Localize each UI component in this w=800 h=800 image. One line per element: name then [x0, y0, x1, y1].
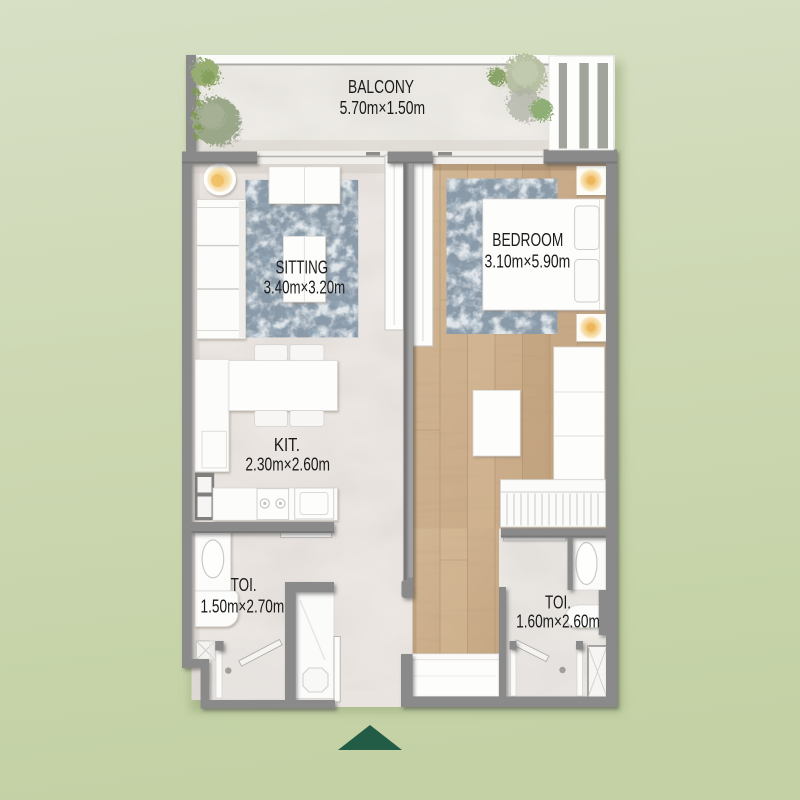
svg-text:2.30m×2.60m: 2.30m×2.60m	[245, 454, 330, 474]
svg-text:1.60m×2.60m: 1.60m×2.60m	[516, 611, 600, 631]
svg-text:BALCONY: BALCONY	[348, 77, 414, 97]
svg-text:BEDROOM: BEDROOM	[492, 230, 563, 250]
svg-text:SITTING: SITTING	[276, 258, 329, 278]
svg-text:1.50m×2.70m: 1.50m×2.70m	[201, 596, 285, 616]
svg-text:TOI.: TOI.	[231, 575, 257, 595]
svg-text:KIT.: KIT.	[274, 435, 300, 455]
svg-text:5.70m×1.50m: 5.70m×1.50m	[340, 98, 426, 118]
svg-text:3.40m×3.20m: 3.40m×3.20m	[264, 278, 346, 298]
svg-text:TOI.: TOI.	[545, 593, 571, 613]
svg-text:3.10m×5.90m: 3.10m×5.90m	[485, 252, 571, 272]
